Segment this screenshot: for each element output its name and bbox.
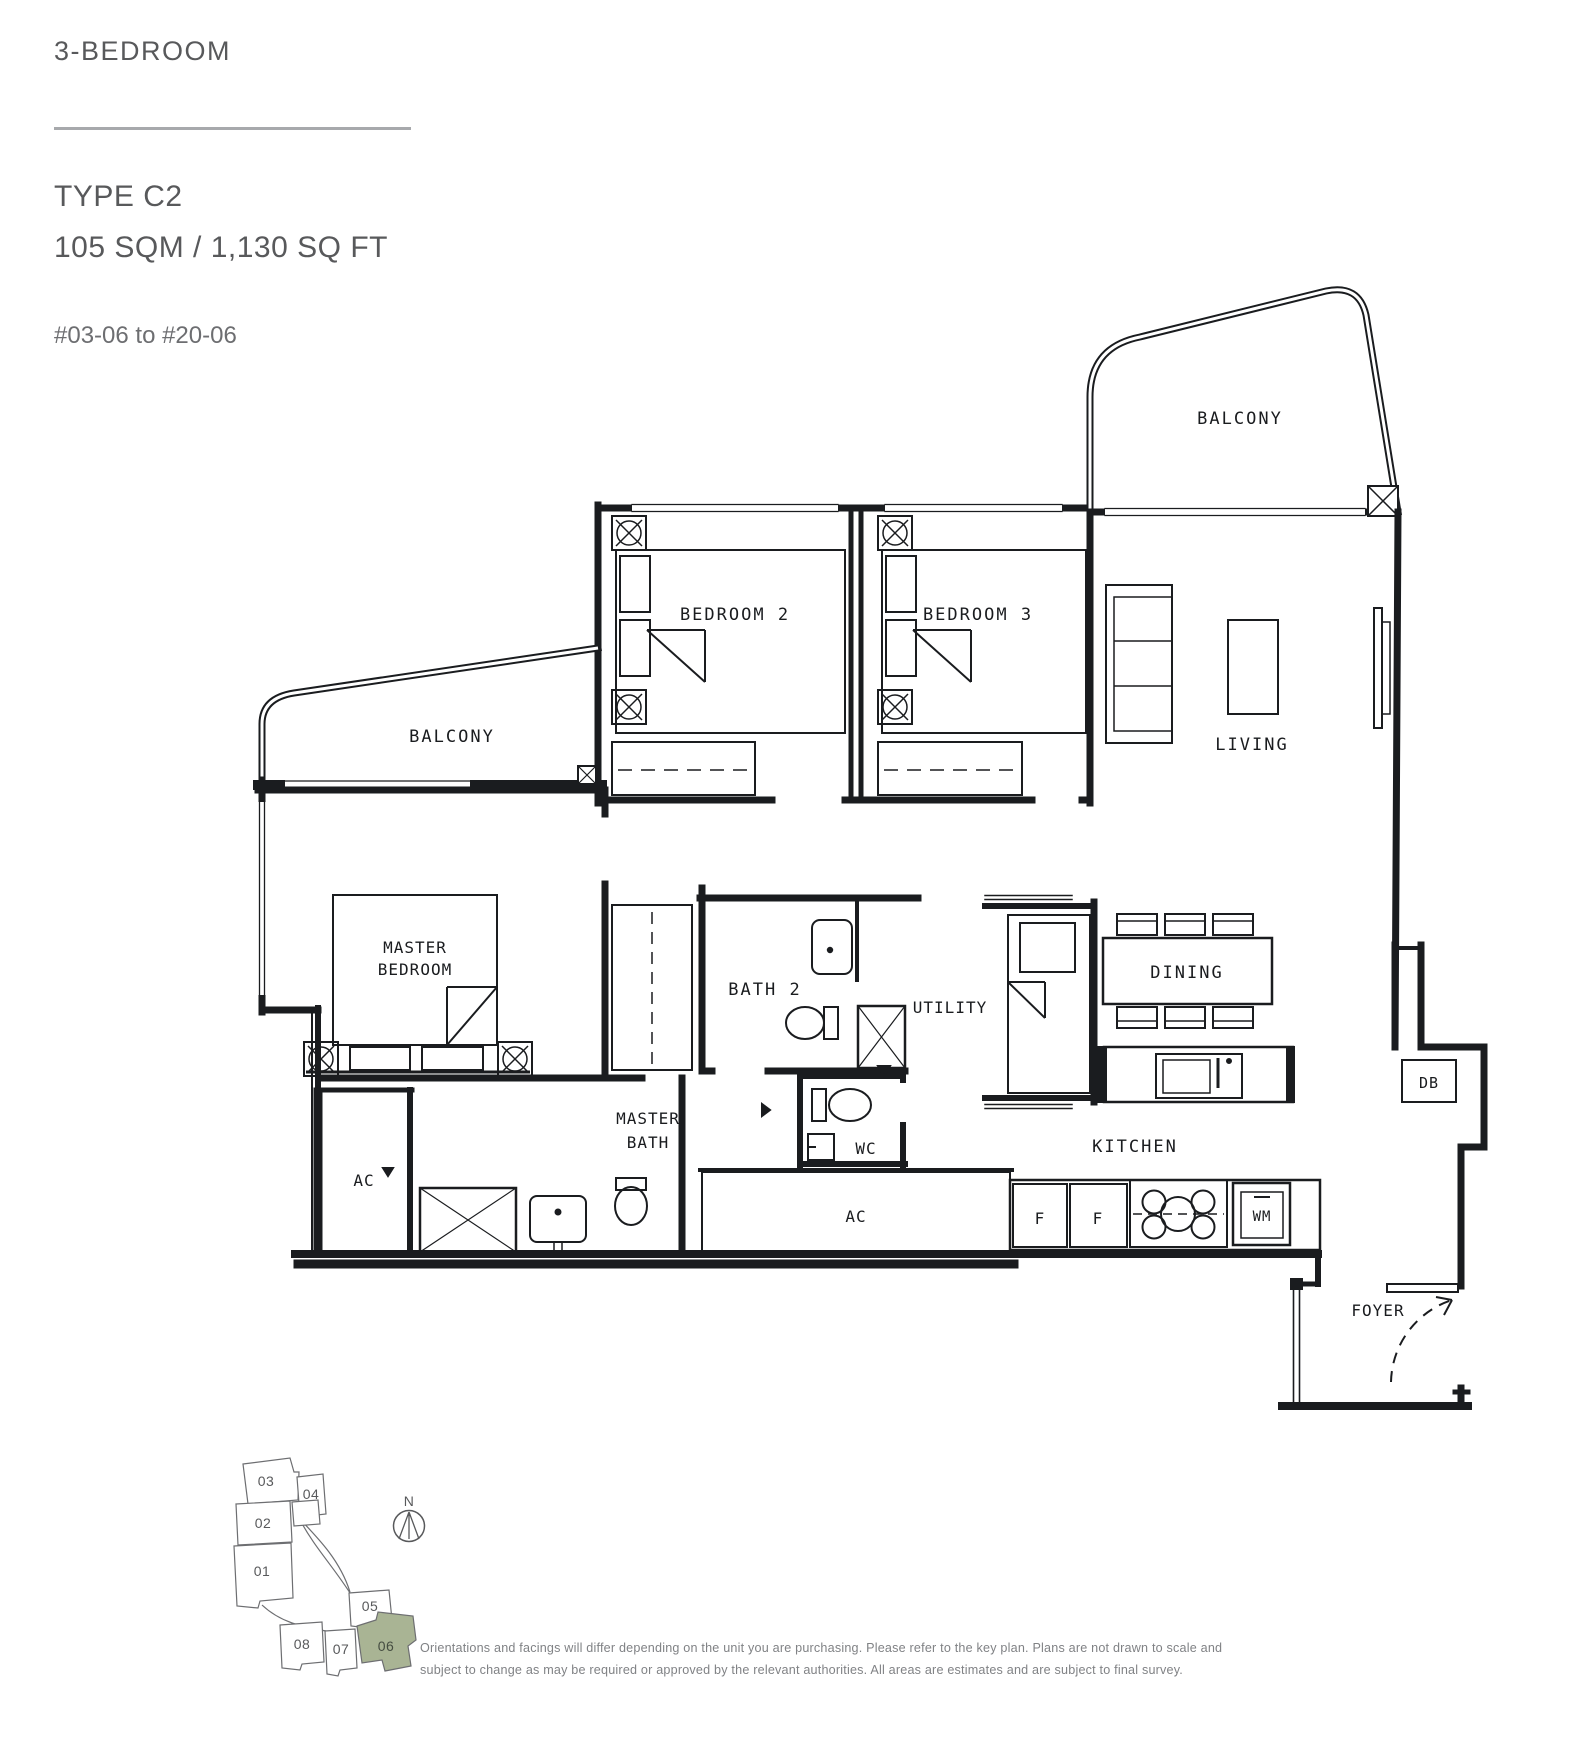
wc-label: WC (855, 1139, 876, 1158)
floor-plan-canvas: BALCONY BALCONY BEDROOM 2 BEDROOM 3 LIVI… (0, 0, 1576, 1760)
balcony-left-label: BALCONY (409, 727, 495, 747)
living-furniture (1106, 585, 1390, 743)
bedroom3-label: BEDROOM 3 (923, 605, 1033, 625)
north-label: N (404, 1493, 415, 1509)
key-label-03: 03 (258, 1473, 275, 1489)
north-compass-icon: N (394, 1493, 425, 1542)
master-bedroom-furniture (304, 895, 692, 1076)
ac-center-label: AC (845, 1207, 866, 1226)
master-bath-label-2: BATH (627, 1133, 670, 1152)
bath2-label: BATH 2 (728, 980, 801, 1000)
washer-label: WM (1253, 1209, 1272, 1225)
disclaimer-line2: subject to change as may be required or … (420, 1663, 1183, 1677)
utility-furniture (1008, 915, 1090, 1093)
dining-label: DINING (1150, 963, 1223, 983)
entry-door (1387, 1284, 1458, 1382)
key-label-07: 07 (333, 1641, 350, 1657)
master-bath-fixtures (383, 1168, 647, 1254)
fridge2-label: F (1093, 1209, 1104, 1228)
balcony-top-label: BALCONY (1197, 409, 1283, 429)
key-label-06: 06 (378, 1638, 395, 1654)
key-unit-core (292, 1500, 320, 1526)
key-plan: 03 04 02 01 05 08 07 06 (234, 1458, 416, 1676)
bedroom2-furniture (612, 516, 845, 795)
master-bedroom-label-1: MASTER (383, 938, 447, 957)
key-label-01: 01 (254, 1563, 271, 1579)
ac-left-label: AC (353, 1171, 374, 1190)
living-label: LIVING (1215, 735, 1288, 755)
disclaimer-line1: Orientations and facings will differ dep… (420, 1641, 1222, 1655)
master-bedroom-label-2: BEDROOM (378, 960, 452, 979)
key-label-08: 08 (294, 1636, 311, 1652)
db-label: DB (1419, 1074, 1439, 1092)
key-label-02: 02 (255, 1515, 272, 1531)
utility-label: UTILITY (913, 998, 987, 1017)
fridge1-label: F (1035, 1209, 1046, 1228)
key-label-04: 04 (303, 1486, 320, 1502)
bedroom2-label: BEDROOM 2 (680, 605, 790, 625)
kitchen-label: KITCHEN (1092, 1137, 1178, 1157)
foyer-label: FOYER (1351, 1301, 1404, 1320)
key-label-05: 05 (362, 1598, 379, 1614)
bath2-fixtures (786, 920, 905, 1068)
master-bath-label-1: MASTER (616, 1109, 680, 1128)
bedroom3-furniture (878, 516, 1086, 795)
